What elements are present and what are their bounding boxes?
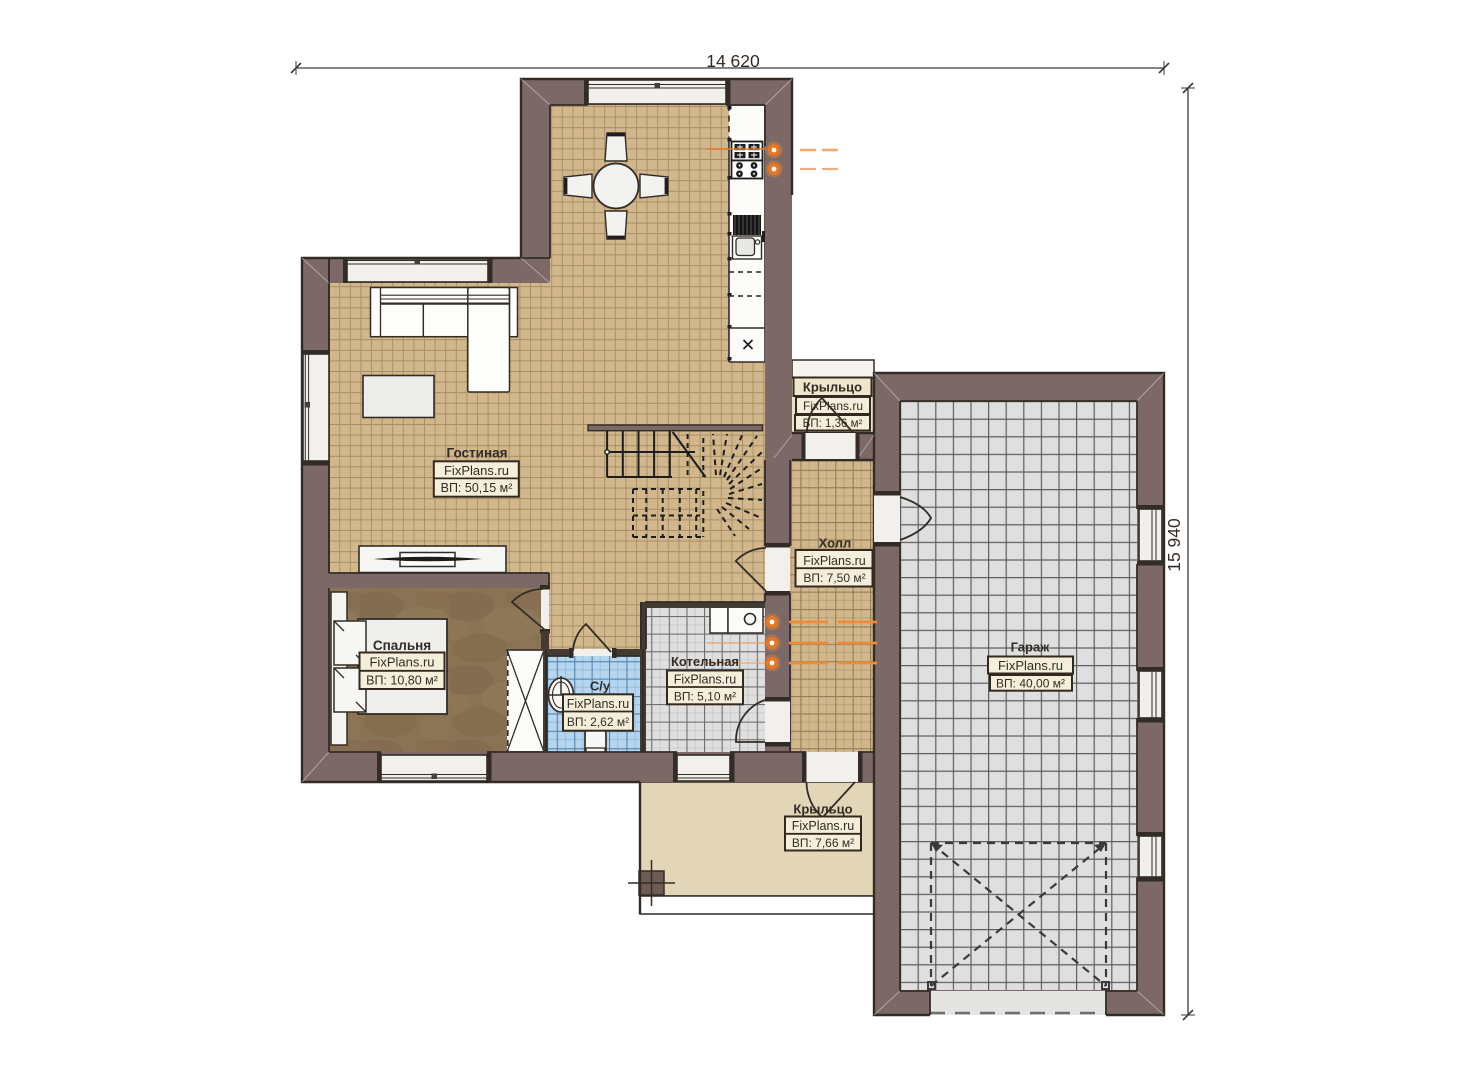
svg-text:14 620: 14 620 <box>706 51 760 71</box>
svg-text:Крыльцо: Крыльцо <box>803 380 862 395</box>
svg-text:Холл: Холл <box>819 536 852 551</box>
svg-text:FixPlans.ru: FixPlans.ru <box>792 819 855 833</box>
svg-text:ВП: 50,15 м²: ВП: 50,15 м² <box>441 481 513 495</box>
svg-text:Спальня: Спальня <box>373 638 431 653</box>
svg-text:ВП: 40,00 м²: ВП: 40,00 м² <box>996 677 1065 691</box>
svg-text:ВП: 5,10 м²: ВП: 5,10 м² <box>674 690 736 704</box>
svg-text:ВП: 1,36 м²: ВП: 1,36 м² <box>803 418 863 430</box>
svg-text:FixPlans.ru: FixPlans.ru <box>369 654 434 669</box>
svg-text:Котельная: Котельная <box>671 654 739 669</box>
svg-text:ВП: 2,62 м²: ВП: 2,62 м² <box>567 715 629 729</box>
svg-text:Крыльцо: Крыльцо <box>793 802 852 817</box>
svg-text:FixPlans.ru: FixPlans.ru <box>803 554 866 568</box>
svg-text:ВП: 7,50 м²: ВП: 7,50 м² <box>803 571 865 585</box>
svg-text:15 940: 15 940 <box>1164 518 1184 572</box>
svg-text:ВП: 10,80 м²: ВП: 10,80 м² <box>366 674 438 688</box>
svg-text:FixPlans.ru: FixPlans.ru <box>674 673 737 687</box>
svg-text:ВП: 7,66 м²: ВП: 7,66 м² <box>792 836 854 850</box>
svg-text:Гостиная: Гостиная <box>446 446 507 461</box>
svg-text:С/у: С/у <box>590 679 611 694</box>
svg-text:FixPlans.ru: FixPlans.ru <box>444 463 509 478</box>
svg-text:FixPlans.ru: FixPlans.ru <box>567 697 630 711</box>
svg-text:FixPlans.ru: FixPlans.ru <box>998 658 1063 673</box>
svg-text:Гараж: Гараж <box>1011 640 1051 655</box>
